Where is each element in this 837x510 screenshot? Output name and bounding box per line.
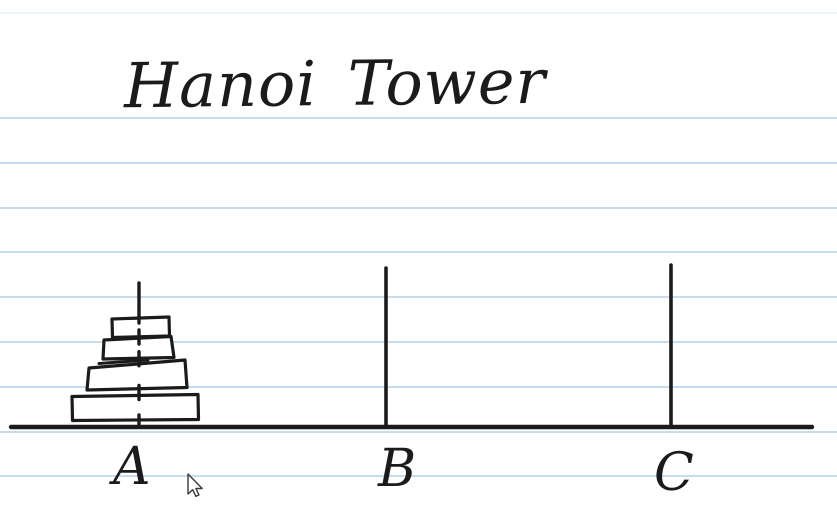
mouse-cursor <box>188 474 202 496</box>
peg-label-c: C <box>654 447 694 499</box>
peg-label-b: B <box>378 443 416 495</box>
whiteboard-canvas[interactable]: Hanoi Tower A B C <box>0 0 837 510</box>
disk-4 <box>72 395 199 421</box>
page-title: Hanoi Tower <box>124 50 547 118</box>
peg-label-a: A <box>113 441 151 493</box>
disk-1 <box>112 317 170 338</box>
